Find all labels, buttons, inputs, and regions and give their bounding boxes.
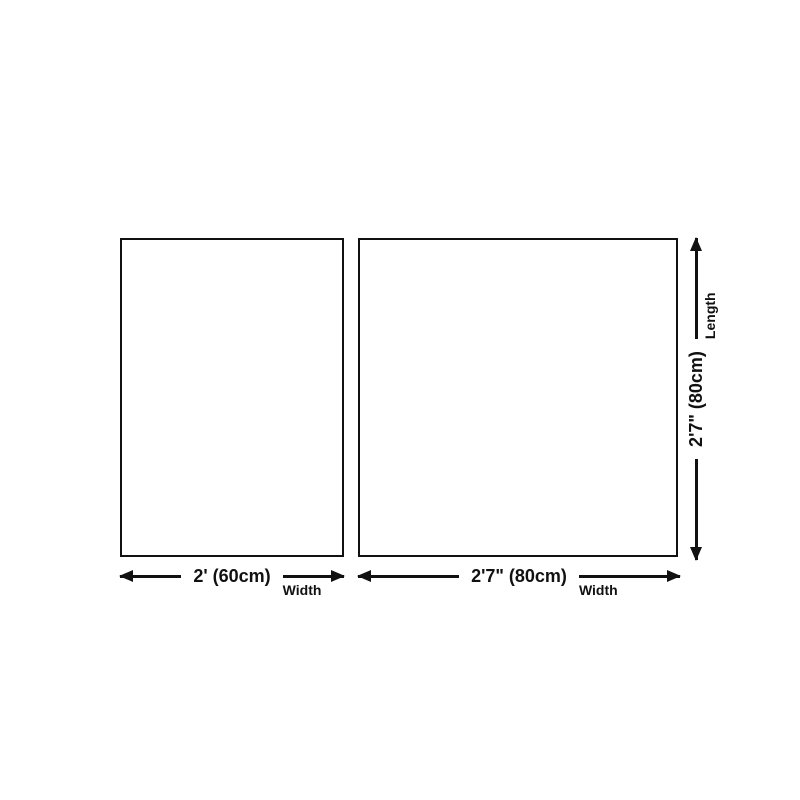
arrow-right-icon: Width (579, 575, 680, 578)
width-dimension-small: 2' (60cm) Width (120, 562, 344, 590)
width-value-small: 2' (60cm) (193, 567, 270, 585)
width-value-large: 2'7" (80cm) (471, 567, 567, 585)
length-dimension-large: 2'7" (80cm) Length (682, 238, 710, 560)
length-label-large: Length (703, 292, 717, 339)
arrow-up-icon: Length (695, 238, 698, 339)
panel-small (120, 238, 344, 557)
arrow-left-icon (358, 575, 459, 578)
panel-large (358, 238, 678, 557)
arrow-right-icon: Width (283, 575, 344, 578)
arrow-left-icon (120, 575, 181, 578)
length-value-large: 2'7" (80cm) (687, 351, 705, 447)
arrow-down-icon (695, 459, 698, 560)
dimension-diagram: 2' (60cm) Width 2'7" (80cm) Width 2'7" (… (0, 0, 800, 800)
width-dimension-large: 2'7" (80cm) Width (358, 562, 680, 590)
width-label-large: Width (579, 583, 618, 597)
width-label-small: Width (283, 583, 322, 597)
